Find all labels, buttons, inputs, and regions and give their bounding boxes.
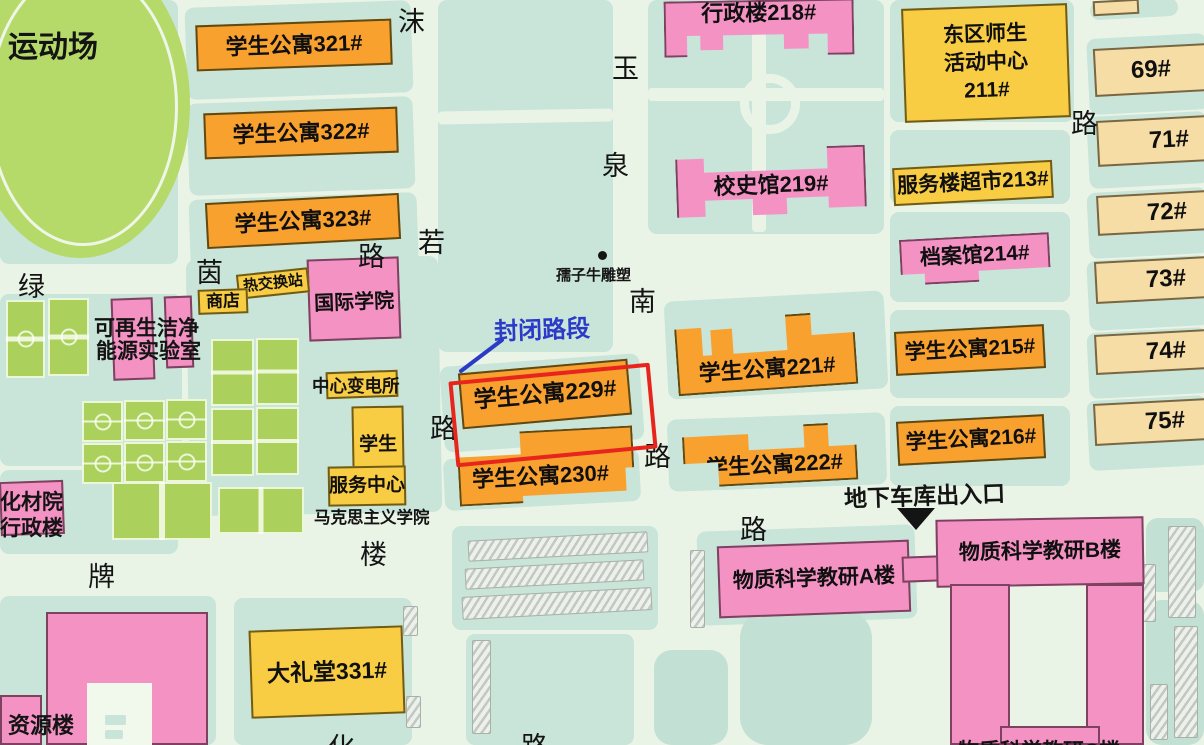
court-center-circle	[136, 412, 153, 429]
basketball-court	[82, 401, 123, 442]
map-text-label: 运动场	[8, 22, 98, 66]
green-area	[654, 650, 728, 745]
building-label: 服务中心	[329, 473, 405, 500]
building-label: 学生公寓222#	[705, 446, 843, 483]
building-label: 档案馆214#	[919, 239, 1030, 273]
road-name-label: 沫	[398, 0, 425, 39]
parking-hatch	[403, 606, 418, 636]
road-name-label: 路	[740, 508, 767, 547]
parking-hatch	[1143, 564, 1156, 622]
basketball-court	[166, 399, 207, 440]
parking-hatch	[1174, 626, 1198, 738]
parking-hatch	[406, 696, 421, 728]
building-bld-69: 69#	[1093, 43, 1204, 97]
building-label-line: 东区师生	[943, 19, 1028, 50]
building-label: 物质科学教研B楼	[959, 537, 1122, 568]
building-label: 学生公寓322#	[232, 116, 370, 150]
building-label: 75#	[1144, 404, 1186, 438]
basketball-court	[166, 441, 207, 482]
tennis-court	[256, 407, 299, 475]
building-label: 71#	[1148, 123, 1190, 157]
building-bld-75: 75#	[1093, 398, 1204, 446]
building-label: 69#	[1130, 53, 1172, 87]
building-label: 东区师生活动中心211#	[943, 19, 1030, 106]
map-text-label: 孺子牛雕塑	[556, 264, 631, 285]
court-center-circle	[94, 455, 111, 472]
tennis-court	[256, 338, 299, 405]
building-label: 73#	[1145, 262, 1187, 296]
courtyard-detail	[105, 715, 126, 725]
road-name-label: 若	[418, 221, 445, 260]
road-name-label: 路	[521, 725, 548, 745]
building-student-service-lower: 服务中心	[328, 465, 407, 506]
building-label: 74#	[1145, 334, 1187, 368]
parking-hatch	[1168, 526, 1196, 618]
building-bld-71: 71#	[1096, 115, 1204, 167]
building-material-research-a: 物质科学教研A楼	[717, 540, 911, 619]
building-label: 热交换站	[242, 270, 304, 296]
road-name-label: 牌	[88, 555, 115, 594]
building-student-service-upper: 学生	[351, 406, 404, 469]
city-block	[466, 634, 634, 745]
building-grand-hall-331: 大礼堂331#	[249, 625, 406, 718]
building-bld-73: 73#	[1094, 256, 1204, 304]
building-label: 商店	[206, 290, 241, 314]
building-label: 学生公寓321#	[225, 28, 363, 62]
road-name-label: 路	[358, 235, 385, 274]
building-label: 国际学院	[314, 288, 395, 318]
road-name-label: 玉	[612, 47, 639, 86]
court-center-circle	[178, 411, 195, 428]
map-text-label: 地下车库出入口	[843, 474, 1005, 514]
building-label: 学生公寓215#	[904, 333, 1036, 368]
building-label: 物质科学教研A楼	[732, 562, 895, 596]
building-label: 学生公寓216#	[905, 423, 1037, 458]
parking-hatch	[1150, 684, 1168, 740]
building-shop: 商店	[198, 288, 249, 315]
road-name-label: 楼	[360, 533, 387, 572]
road-name-label: 绿	[18, 265, 45, 304]
court-center-circle	[60, 329, 77, 346]
tennis-court	[218, 487, 304, 534]
building-activity-center-211: 东区师生活动中心211#	[901, 3, 1071, 123]
court-center-circle	[94, 413, 111, 430]
building-apartment-216: 学生公寓216#	[896, 414, 1046, 466]
building-label: 校史馆219#	[713, 168, 829, 201]
green-area	[740, 610, 872, 745]
building-label-line: 活动中心	[944, 47, 1029, 78]
courtyard-detail	[105, 730, 123, 739]
building-apartment-322: 学生公寓322#	[203, 107, 398, 160]
court-center-circle	[178, 453, 195, 470]
tennis-court	[112, 482, 212, 540]
map-text-label: 行政楼	[0, 512, 63, 542]
tennis-court	[211, 408, 254, 476]
building-label: 72#	[1146, 195, 1188, 229]
building-apartment-321: 学生公寓321#	[195, 19, 392, 72]
basketball-court	[82, 443, 123, 484]
basketball-court	[124, 442, 165, 483]
basketball-court	[6, 300, 45, 378]
map-text-label: 马克思主义学院	[314, 504, 430, 528]
basketball-court	[48, 298, 89, 376]
building-label: 学生	[359, 432, 397, 458]
building-material-research-b: 物质科学教研B楼	[935, 516, 1144, 588]
road-name-label: 南	[629, 280, 656, 319]
city-block	[438, 0, 613, 352]
building-bld-72: 72#	[1096, 190, 1204, 236]
building-label: 大礼堂331#	[266, 655, 387, 690]
building-apartment-215: 学生公寓215#	[894, 324, 1046, 376]
campus-map-canvas: 封闭路段 学生公寓321#学生公寓322#学生公寓323#行政楼218#校史馆2…	[0, 0, 1204, 745]
building-label-line: 211#	[945, 76, 1030, 107]
building-label: 服务楼超市213#	[897, 165, 1050, 201]
building-bld-74: 74#	[1094, 329, 1204, 375]
basketball-court	[124, 400, 165, 441]
map-text-label: 中心变电所	[312, 373, 400, 398]
building-intl-college: 国际学院	[307, 256, 402, 341]
plaza-circle	[740, 74, 800, 134]
building-label: 行政楼218#	[701, 0, 816, 29]
building-label: 学生公寓221#	[698, 349, 837, 388]
road-name-label: 茵	[196, 251, 223, 290]
court-center-circle	[17, 331, 34, 348]
parking-hatch	[690, 550, 705, 628]
building-bld-top-partial	[1093, 0, 1140, 16]
building-material-b-left-wing	[950, 584, 1010, 745]
statue-marker-dot	[598, 251, 607, 260]
court-center-circle	[136, 454, 153, 471]
building-material-b-right-wing	[1086, 584, 1144, 745]
road-name-label: 路	[1071, 102, 1098, 141]
road-name-label: 泉	[602, 144, 629, 183]
map-text-label: 资源楼	[8, 708, 74, 740]
tennis-court	[211, 339, 254, 406]
road-name-label: 化	[328, 726, 355, 745]
parking-hatch	[472, 640, 491, 734]
map-text-label: 能源实验室	[96, 335, 201, 365]
building-label: 学生公寓323#	[234, 203, 372, 240]
map-text-label: 物质科学教研C楼	[958, 735, 1120, 745]
closed-road-label: 封闭路段	[493, 308, 590, 346]
